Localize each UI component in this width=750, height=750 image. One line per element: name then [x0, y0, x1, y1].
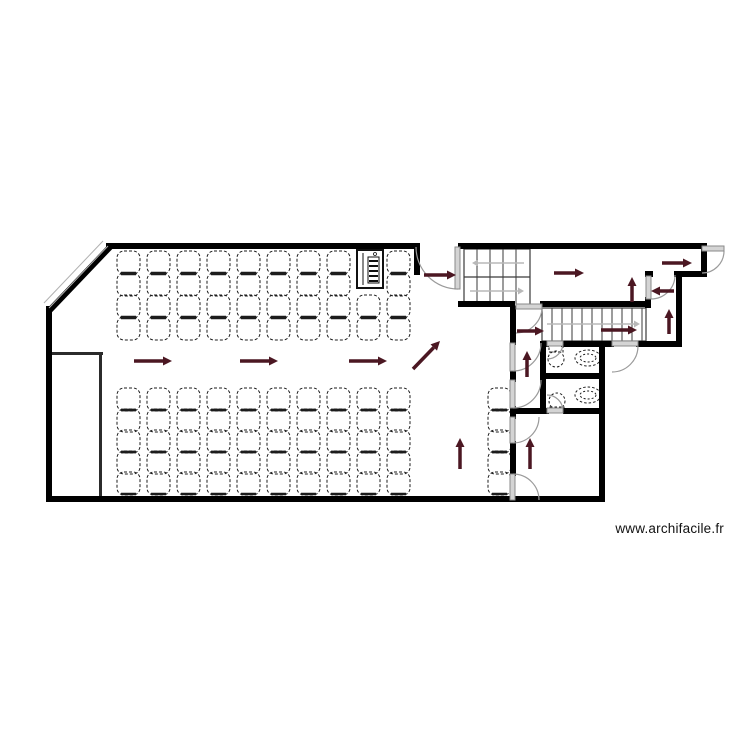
chair: [387, 251, 410, 274]
chair: [117, 472, 140, 495]
chair: [357, 317, 380, 340]
chair: [117, 388, 140, 411]
chair: [387, 430, 410, 453]
chair: [267, 251, 290, 274]
chair: [147, 451, 170, 474]
chair: [488, 472, 511, 495]
chair: [147, 273, 170, 296]
floor-plan-page: www.archifacile.fr: [0, 0, 750, 750]
chair: [207, 430, 230, 453]
chair: [207, 451, 230, 474]
wall: [46, 306, 52, 502]
chair: [387, 451, 410, 474]
chair: [177, 430, 200, 453]
chair: [117, 409, 140, 432]
door-leaf: [547, 341, 563, 346]
wall: [540, 373, 603, 379]
chair: [147, 251, 170, 274]
wall: [676, 271, 682, 347]
chair: [267, 317, 290, 340]
evacuation-arrow-head: [456, 438, 465, 447]
chair: [387, 388, 410, 411]
chair: [237, 273, 260, 296]
chair: [147, 317, 170, 340]
chair: [237, 430, 260, 453]
chair: [357, 451, 380, 474]
sink-basin: [580, 354, 596, 362]
chair: [327, 388, 350, 411]
chair: [177, 472, 200, 495]
door-leaf: [510, 380, 515, 408]
wall: [46, 496, 605, 502]
door-leaf: [510, 343, 515, 371]
chair: [237, 317, 260, 340]
chair: [267, 273, 290, 296]
chair: [488, 409, 511, 432]
chair: [207, 409, 230, 432]
chair: [357, 409, 380, 432]
chair: [237, 388, 260, 411]
chair: [267, 472, 290, 495]
door-leaf: [516, 304, 542, 309]
evacuation-arrow-head: [628, 277, 637, 286]
window-line: [49, 246, 108, 308]
chair: [177, 295, 200, 318]
wall: [510, 306, 516, 345]
chair: [297, 451, 320, 474]
chair: [297, 251, 320, 274]
chair: [488, 451, 511, 474]
window-line: [44, 241, 103, 303]
chair: [237, 251, 260, 274]
chair: [207, 388, 230, 411]
evacuation-arrow-head: [665, 309, 674, 318]
chair: [267, 430, 290, 453]
chair: [237, 451, 260, 474]
chair: [297, 317, 320, 340]
chair: [387, 273, 410, 296]
chair: [117, 273, 140, 296]
chair: [117, 451, 140, 474]
evacuation-arrow-shaft: [413, 347, 434, 369]
chair: [327, 251, 350, 274]
wall: [458, 301, 515, 307]
wall: [510, 408, 549, 414]
chair: [177, 273, 200, 296]
chair: [357, 472, 380, 495]
chair: [297, 472, 320, 495]
door-swing-arc: [651, 275, 675, 299]
door-leaf: [646, 276, 651, 299]
chair: [387, 295, 410, 318]
chair: [327, 451, 350, 474]
wall: [636, 341, 682, 347]
chair: [387, 472, 410, 495]
chair: [327, 472, 350, 495]
door-leaf: [455, 247, 460, 289]
chair: [117, 317, 140, 340]
evacuation-arrow-head: [269, 357, 278, 366]
chair: [387, 409, 410, 432]
chair: [327, 430, 350, 453]
chair: [237, 295, 260, 318]
sink-basin: [580, 391, 596, 399]
chair: [237, 409, 260, 432]
chair: [267, 409, 290, 432]
sink-icon: [575, 387, 601, 403]
door-swing-arc: [612, 346, 638, 372]
evacuation-arrow-head: [378, 357, 387, 366]
door-leaf: [547, 408, 563, 413]
door-leaf: [702, 246, 724, 251]
wall: [510, 441, 516, 476]
door-swing-arc: [513, 380, 541, 408]
chair: [297, 388, 320, 411]
inner-wall: [99, 352, 102, 499]
chair: [297, 273, 320, 296]
wall: [561, 341, 603, 347]
chair: [177, 451, 200, 474]
chair: [327, 273, 350, 296]
chair: [147, 430, 170, 453]
evacuation-arrow-head: [523, 351, 532, 360]
evacuation-arrow-head: [575, 269, 584, 278]
evacuation-arrow-head: [651, 287, 660, 296]
chair: [297, 409, 320, 432]
chair: [327, 317, 350, 340]
chair: [207, 317, 230, 340]
wall: [563, 408, 603, 414]
chair: [267, 295, 290, 318]
chair: [488, 388, 511, 411]
chair: [177, 409, 200, 432]
watermark: www.archifacile.fr: [615, 521, 724, 536]
wall: [106, 243, 419, 249]
chair: [147, 388, 170, 411]
chair: [147, 409, 170, 432]
door-swing-arc: [513, 417, 539, 443]
chair: [207, 251, 230, 274]
inner-wall: [46, 352, 103, 355]
sink-icon: [575, 350, 601, 366]
chair: [267, 451, 290, 474]
chair: [177, 251, 200, 274]
chair: [207, 295, 230, 318]
evacuation-arrow-head: [163, 357, 172, 366]
chair: [267, 388, 290, 411]
chair: [297, 430, 320, 453]
chair: [147, 472, 170, 495]
chair: [117, 430, 140, 453]
door-leaf: [510, 474, 515, 500]
door-leaf: [510, 417, 515, 443]
chair: [117, 251, 140, 274]
chair: [387, 317, 410, 340]
chair: [177, 388, 200, 411]
door-leaf: [612, 341, 638, 346]
chair: [357, 388, 380, 411]
chair: [488, 430, 511, 453]
wall: [599, 341, 605, 502]
chair: [237, 472, 260, 495]
chair: [357, 430, 380, 453]
door-swing-arc: [416, 247, 458, 289]
chair: [177, 317, 200, 340]
chair: [327, 409, 350, 432]
evacuation-arrow-head: [683, 259, 692, 268]
chair: [207, 273, 230, 296]
chair: [207, 472, 230, 495]
chair: [357, 295, 380, 318]
chair: [297, 295, 320, 318]
diagonal-wall: [48, 246, 111, 312]
wall: [414, 243, 420, 275]
floor-plan: [0, 0, 750, 750]
chair: [327, 295, 350, 318]
chair: [147, 295, 170, 318]
wall: [458, 243, 707, 249]
chair: [117, 295, 140, 318]
